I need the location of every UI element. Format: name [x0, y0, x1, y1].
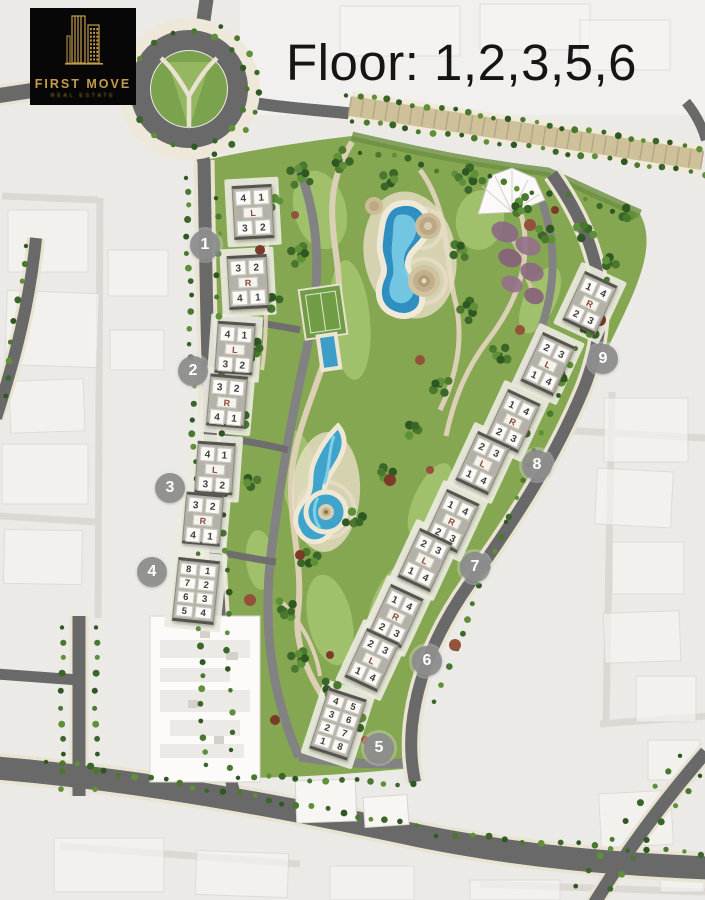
- building-block-b1b[interactable]: 32R41: [227, 254, 270, 310]
- unit-number: 1: [313, 733, 332, 749]
- unit-number: 2: [229, 380, 245, 396]
- unit-number: 2: [254, 219, 271, 235]
- unit-number: 2: [205, 498, 221, 514]
- unit-number: 1: [199, 564, 217, 578]
- unit-number: 1: [226, 410, 242, 426]
- unit-number: 3: [196, 592, 214, 606]
- stair-core-label: R: [193, 514, 213, 527]
- stair-core-label: L: [243, 206, 264, 218]
- plot-marker-4[interactable]: 4: [137, 557, 167, 587]
- stair-core-label: R: [238, 276, 259, 288]
- unit-number: 2: [214, 477, 230, 493]
- plot-marker-8[interactable]: 8: [522, 450, 552, 480]
- unit-number: 8: [180, 562, 198, 576]
- master-plan-canvas: 41L3232R4141L3232R4141L3232R418172635445…: [0, 0, 705, 900]
- unit-number: 4: [231, 290, 248, 306]
- plot-marker-9[interactable]: 9: [588, 344, 618, 374]
- plot-marker-7[interactable]: 7: [460, 552, 490, 582]
- brand-tagline: REAL ESTATE: [51, 93, 116, 99]
- building-block-b3a[interactable]: 41L32: [194, 441, 236, 496]
- unit-number: 4: [235, 190, 252, 206]
- lap-pool: [318, 334, 341, 370]
- unit-number: 3: [212, 379, 228, 395]
- unit-number: 2: [197, 578, 215, 592]
- unit-number: 3: [581, 311, 600, 331]
- unit-number: 6: [177, 590, 195, 604]
- unit-number: 3: [230, 260, 247, 276]
- unit-number: 4: [194, 606, 212, 620]
- unit-number: 4: [539, 372, 558, 392]
- unit-number: 1: [202, 528, 218, 544]
- brand-logo: FIRST MOVE REAL ESTATE: [30, 8, 136, 105]
- unit-number: 3: [197, 476, 213, 492]
- unit-number: 1: [253, 189, 270, 205]
- building-block-b3b[interactable]: 32R41: [182, 491, 224, 546]
- unit-number: 4: [219, 326, 235, 342]
- unit-number: 4: [474, 471, 493, 491]
- building-block-b1a[interactable]: 41L32: [232, 184, 275, 240]
- unit-number: 1: [216, 447, 232, 463]
- plot-marker-1[interactable]: 1: [190, 230, 220, 260]
- stair-core-label: L: [225, 343, 245, 355]
- building-block-b2b[interactable]: 32R41: [206, 373, 248, 428]
- unit-number: 5: [175, 604, 193, 618]
- unit-number: 2: [248, 259, 265, 275]
- floor-title: Floor: 1,2,3,5,6: [286, 33, 637, 92]
- unit-number: 3: [188, 497, 204, 513]
- plot-marker-2[interactable]: 2: [178, 356, 208, 386]
- building-block-b2a[interactable]: 41L32: [214, 321, 256, 376]
- site-map: [0, 0, 705, 900]
- sports-court: [299, 284, 348, 339]
- brand-name: FIRST MOVE: [35, 77, 131, 91]
- logo-building-icon: [55, 12, 111, 68]
- stair-core-label: L: [205, 463, 225, 475]
- building-block-b4[interactable]: 81726354: [172, 557, 220, 625]
- unit-number: 4: [199, 446, 215, 462]
- plot-marker-6[interactable]: 6: [412, 646, 442, 676]
- unit-number: 7: [178, 576, 196, 590]
- plot-marker-3[interactable]: 3: [155, 473, 185, 503]
- unit-number: 8: [331, 739, 350, 755]
- stair-core-label: R: [217, 396, 237, 409]
- unit-number: 3: [217, 356, 233, 372]
- unit-number: 1: [236, 327, 252, 343]
- unit-number: 1: [249, 289, 266, 305]
- unit-number: 4: [209, 409, 225, 425]
- unit-number: 2: [234, 357, 250, 373]
- unit-number: 4: [363, 668, 382, 688]
- plot-marker-5[interactable]: 5: [364, 733, 394, 763]
- unit-number: 3: [236, 220, 253, 236]
- unit-number: 4: [416, 568, 435, 588]
- mall-building: [150, 616, 260, 782]
- unit-number: 4: [185, 527, 201, 543]
